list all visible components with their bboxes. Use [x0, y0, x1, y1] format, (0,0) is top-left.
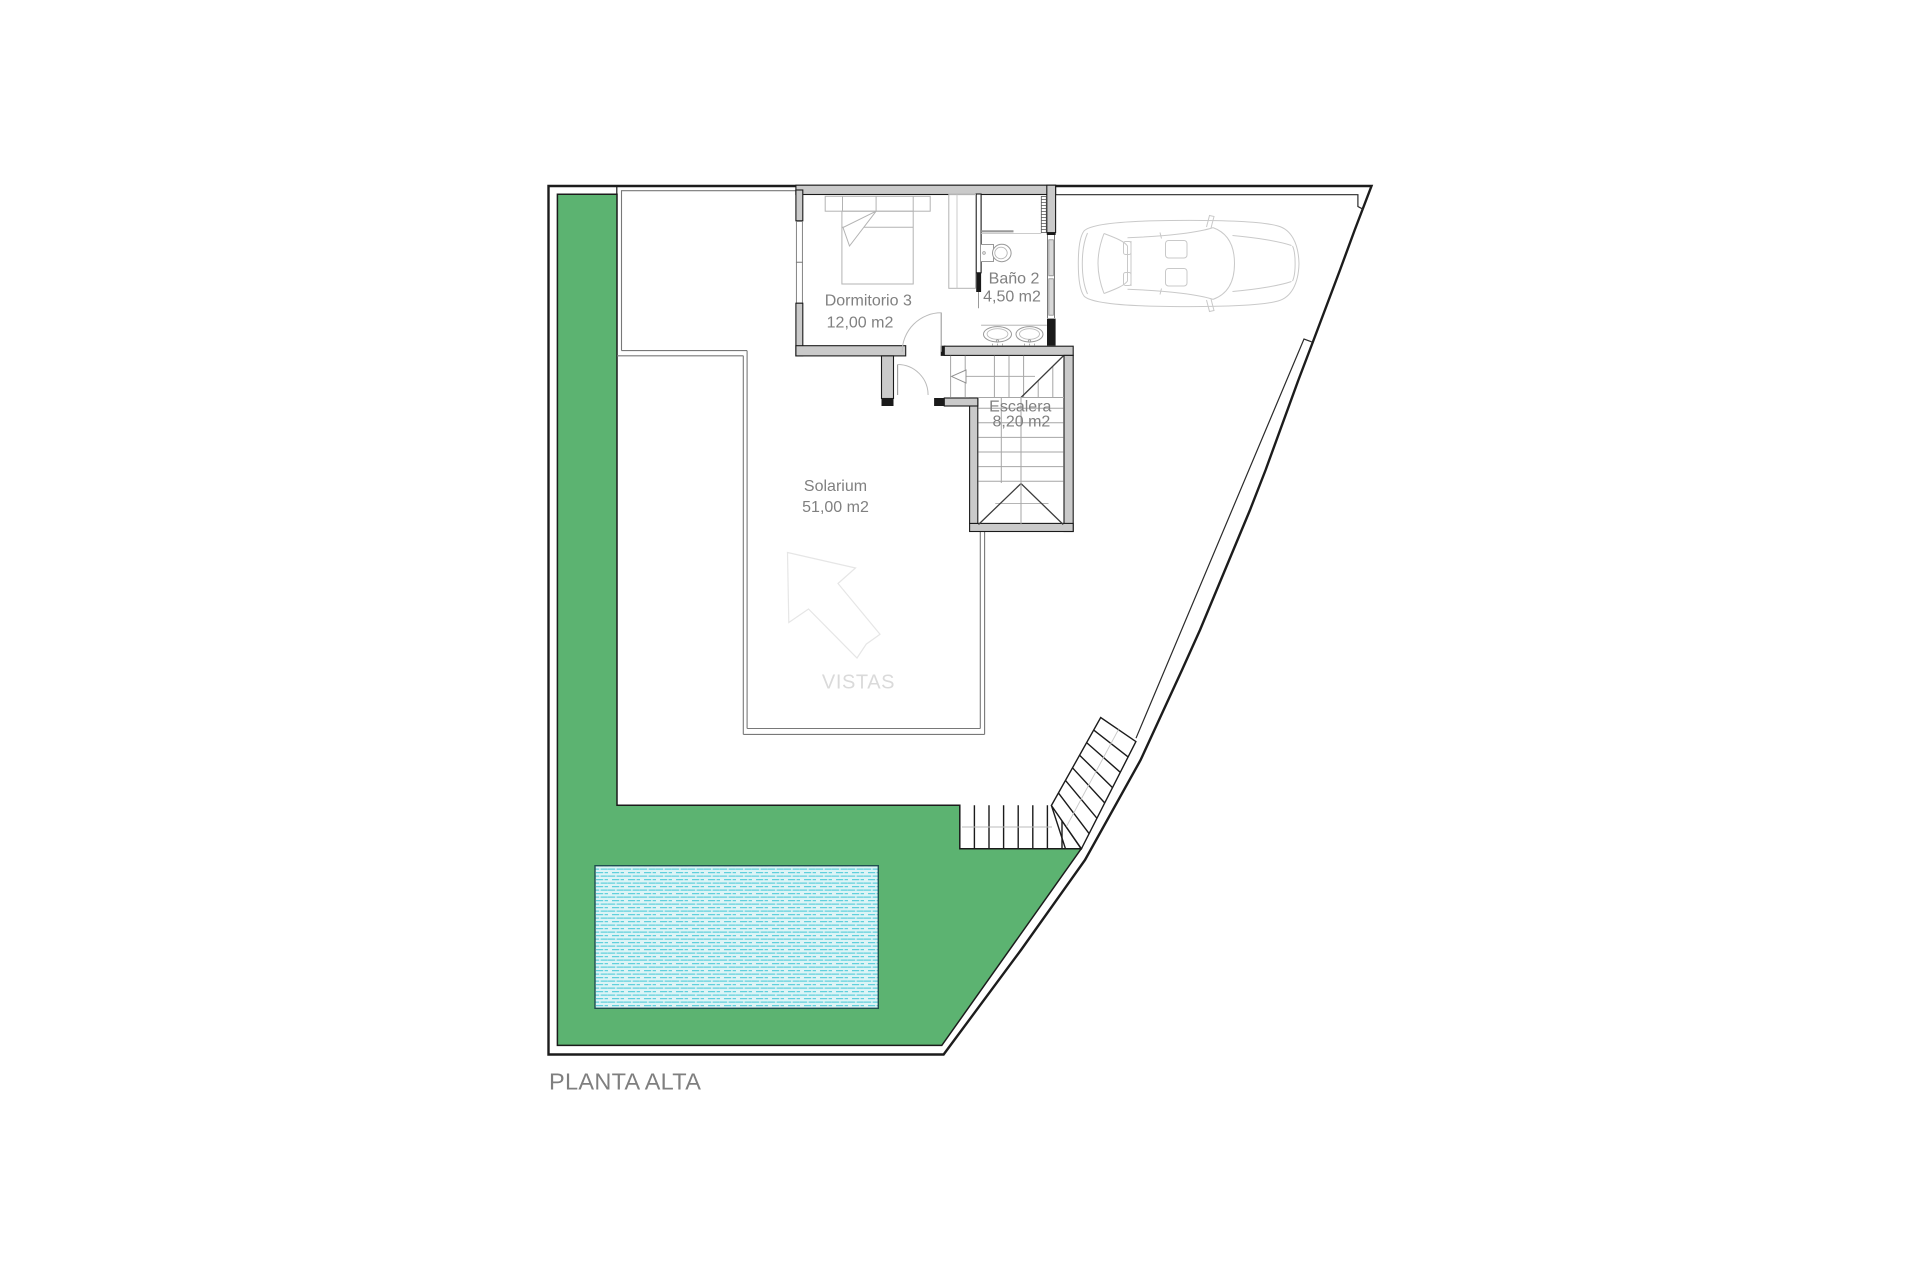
svg-text:Dormitorio 3: Dormitorio 3 [825, 292, 912, 309]
svg-text:8,20 m2: 8,20 m2 [992, 414, 1050, 431]
svg-text:Solarium: Solarium [804, 478, 867, 495]
svg-text:4,50 m2: 4,50 m2 [983, 288, 1041, 305]
svg-text:PLANTA ALTA: PLANTA ALTA [549, 1069, 701, 1095]
svg-text:VISTAS: VISTAS [822, 672, 895, 694]
svg-text:Baño 2: Baño 2 [989, 270, 1040, 287]
svg-text:51,00 m2: 51,00 m2 [802, 499, 869, 516]
svg-text:12,00 m2: 12,00 m2 [827, 315, 894, 332]
